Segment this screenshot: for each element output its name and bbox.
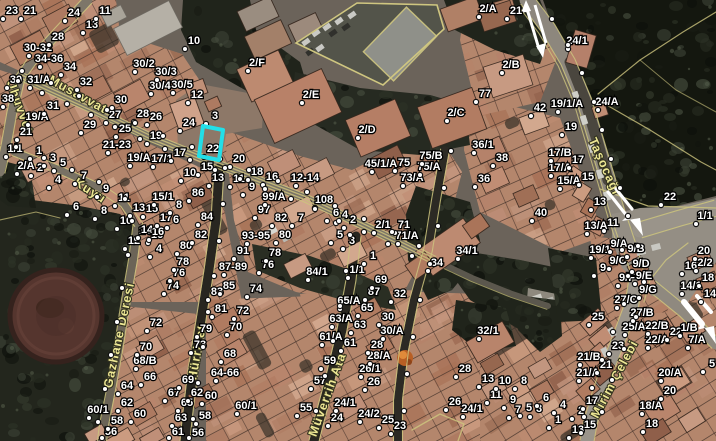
svg-text:59: 59 (324, 355, 336, 367)
svg-text:30/4: 30/4 (149, 80, 171, 92)
svg-text:11: 11 (99, 5, 111, 17)
svg-text:8: 8 (101, 205, 107, 217)
svg-text:11: 11 (607, 217, 619, 229)
svg-text:1/1: 1/1 (697, 210, 712, 222)
svg-text:65: 65 (361, 302, 373, 314)
svg-text:79: 79 (200, 323, 212, 335)
svg-text:5: 5 (709, 358, 715, 370)
svg-text:71/A: 71/A (395, 230, 418, 242)
svg-text:10: 10 (184, 167, 196, 179)
svg-text:61: 61 (344, 337, 356, 349)
svg-text:5: 5 (337, 229, 343, 241)
svg-text:80: 80 (279, 229, 291, 241)
svg-text:21: 21 (20, 126, 32, 138)
svg-text:4: 4 (156, 243, 163, 255)
svg-text:2/D: 2/D (358, 124, 375, 136)
svg-text:28: 28 (52, 31, 64, 43)
svg-text:2/2: 2/2 (697, 257, 712, 269)
svg-text:9: 9 (600, 262, 606, 274)
svg-text:36: 36 (478, 173, 490, 185)
svg-text:7: 7 (81, 170, 87, 182)
svg-text:23: 23 (394, 420, 406, 432)
svg-text:64: 64 (121, 380, 134, 392)
svg-text:18: 18 (702, 272, 714, 284)
svg-text:18: 18 (251, 166, 263, 178)
svg-text:3: 3 (50, 152, 56, 164)
svg-text:21: 21 (510, 5, 522, 17)
svg-text:77: 77 (479, 88, 491, 100)
svg-text:15: 15 (582, 171, 594, 183)
svg-text:13: 13 (133, 202, 145, 214)
svg-text:60: 60 (134, 408, 146, 420)
svg-text:82: 82 (275, 212, 287, 224)
svg-text:72: 72 (237, 305, 249, 317)
svg-text:9/A: 9/A (610, 238, 627, 250)
svg-text:21: 21 (24, 5, 36, 17)
svg-text:24/1: 24/1 (461, 403, 482, 415)
svg-text:32/1: 32/1 (477, 325, 498, 337)
svg-text:26: 26 (150, 111, 162, 123)
svg-text:87-89: 87-89 (219, 261, 247, 273)
svg-text:69: 69 (182, 374, 194, 386)
svg-text:38: 38 (496, 152, 508, 164)
svg-text:66: 66 (144, 371, 156, 383)
svg-text:2/A: 2/A (17, 160, 34, 172)
svg-text:69: 69 (375, 274, 387, 286)
svg-text:70: 70 (230, 321, 242, 333)
svg-text:26: 26 (368, 376, 380, 388)
svg-text:9: 9 (103, 183, 109, 195)
svg-text:2/C: 2/C (447, 107, 464, 119)
svg-text:34-36: 34-36 (35, 53, 63, 65)
svg-text:3: 3 (212, 110, 218, 122)
svg-text:6: 6 (543, 392, 549, 404)
svg-text:60: 60 (205, 390, 217, 402)
svg-text:30/A: 30/A (380, 325, 403, 337)
svg-text:12-14: 12-14 (291, 172, 320, 184)
svg-text:75/B: 75/B (419, 150, 442, 162)
svg-text:17: 17 (586, 395, 598, 407)
svg-text:9/G: 9/G (639, 284, 657, 296)
svg-text:20/A: 20/A (658, 367, 681, 379)
svg-text:1/B: 1/B (680, 322, 697, 334)
svg-text:45/1/A: 45/1/A (365, 158, 397, 170)
svg-text:13: 13 (594, 196, 606, 208)
svg-text:28: 28 (137, 108, 149, 120)
svg-text:9: 9 (249, 181, 255, 193)
svg-text:85: 85 (223, 280, 235, 292)
svg-text:2/1: 2/1 (375, 219, 390, 231)
svg-text:10: 10 (188, 35, 200, 47)
svg-text:7/A: 7/A (688, 334, 705, 346)
svg-text:4: 4 (560, 399, 567, 411)
svg-text:24: 24 (183, 117, 196, 129)
svg-text:19/1: 19/1 (589, 244, 610, 256)
svg-text:60/1: 60/1 (235, 400, 256, 412)
svg-text:25: 25 (592, 311, 604, 323)
svg-text:81: 81 (215, 303, 227, 315)
svg-text:63/A: 63/A (329, 313, 352, 325)
svg-text:75: 75 (398, 157, 410, 169)
svg-text:108: 108 (315, 194, 333, 206)
svg-text:25: 25 (382, 414, 394, 426)
svg-text:32: 32 (80, 76, 92, 88)
svg-text:30/2: 30/2 (133, 58, 154, 70)
svg-text:63: 63 (354, 319, 366, 331)
svg-text:30/3: 30/3 (155, 66, 176, 78)
svg-text:17/B: 17/B (548, 147, 571, 159)
svg-text:19: 19 (565, 121, 577, 133)
svg-text:60/1: 60/1 (87, 404, 108, 416)
svg-text:8: 8 (176, 199, 182, 211)
svg-text:70: 70 (140, 341, 152, 353)
svg-text:86: 86 (192, 187, 204, 199)
svg-text:7: 7 (298, 212, 304, 224)
svg-text:30: 30 (382, 311, 394, 323)
svg-text:62: 62 (121, 397, 133, 409)
svg-text:2/A: 2/A (479, 3, 496, 15)
svg-text:13: 13 (482, 373, 494, 385)
svg-text:4: 4 (55, 174, 62, 186)
svg-text:4: 4 (342, 209, 349, 221)
svg-text:36/1: 36/1 (472, 139, 493, 151)
svg-text:84: 84 (201, 211, 214, 223)
svg-text:24: 24 (68, 7, 81, 19)
svg-text:24/2: 24/2 (358, 408, 379, 420)
svg-text:2: 2 (350, 214, 356, 226)
svg-text:31: 31 (47, 100, 59, 112)
svg-text:84/1: 84/1 (306, 266, 327, 278)
svg-text:15: 15 (584, 419, 596, 431)
svg-text:10: 10 (499, 375, 511, 387)
svg-text:21/B: 21/B (577, 351, 600, 363)
svg-text:6: 6 (73, 201, 79, 213)
svg-text:28: 28 (459, 363, 471, 375)
svg-text:42: 42 (534, 102, 546, 114)
svg-text:18/A: 18/A (639, 400, 662, 412)
svg-text:24/A: 24/A (595, 96, 618, 108)
svg-text:34: 34 (64, 61, 77, 73)
svg-text:22: 22 (207, 143, 219, 155)
svg-text:99/A: 99/A (262, 191, 285, 203)
svg-text:6: 6 (173, 214, 179, 226)
svg-text:72: 72 (150, 317, 162, 329)
svg-text:68: 68 (224, 348, 236, 360)
svg-text:19/A: 19/A (127, 152, 150, 164)
svg-text:21-23: 21-23 (103, 139, 131, 151)
svg-text:2/B: 2/B (502, 59, 519, 71)
svg-text:14: 14 (704, 288, 716, 300)
svg-text:32: 32 (394, 288, 406, 300)
svg-text:22: 22 (664, 191, 676, 203)
svg-text:93-95: 93-95 (242, 230, 270, 242)
svg-text:74: 74 (250, 283, 263, 295)
svg-text:25: 25 (119, 123, 131, 135)
svg-text:20: 20 (664, 385, 676, 397)
svg-text:30/5: 30/5 (171, 79, 192, 91)
svg-text:64-66: 64-66 (211, 367, 239, 379)
svg-text:29: 29 (84, 119, 96, 131)
svg-text:5: 5 (60, 157, 66, 169)
svg-text:31/A: 31/A (27, 74, 50, 86)
svg-text:18: 18 (646, 418, 658, 430)
svg-text:12: 12 (191, 89, 203, 101)
svg-text:1: 1 (370, 250, 376, 262)
svg-text:23: 23 (6, 5, 18, 17)
svg-text:78: 78 (269, 247, 281, 259)
svg-text:34/1: 34/1 (456, 245, 477, 257)
svg-text:26: 26 (449, 396, 461, 408)
svg-text:19/1/A: 19/1/A (551, 98, 583, 110)
svg-text:20: 20 (233, 153, 245, 165)
svg-text:24/1: 24/1 (334, 397, 355, 409)
svg-text:22/B: 22/B (645, 320, 668, 332)
svg-text:82: 82 (195, 229, 207, 241)
svg-text:30: 30 (115, 94, 127, 106)
svg-text:1: 1 (555, 414, 561, 426)
svg-text:2/F: 2/F (249, 57, 265, 69)
svg-text:56: 56 (192, 427, 204, 439)
svg-text:40: 40 (535, 207, 547, 219)
svg-text:2/E: 2/E (303, 89, 320, 101)
svg-text:15/1: 15/1 (152, 191, 173, 203)
svg-text:9/D: 9/D (632, 258, 649, 270)
svg-text:38: 38 (2, 93, 14, 105)
svg-text:17: 17 (572, 154, 584, 166)
svg-text:58: 58 (199, 410, 211, 422)
svg-text:17: 17 (174, 147, 186, 159)
svg-text:1: 1 (36, 145, 42, 157)
svg-text:55: 55 (300, 402, 312, 414)
svg-text:20: 20 (698, 245, 710, 257)
svg-text:8: 8 (521, 375, 527, 387)
svg-text:5: 5 (526, 402, 532, 414)
svg-text:13: 13 (212, 172, 224, 184)
